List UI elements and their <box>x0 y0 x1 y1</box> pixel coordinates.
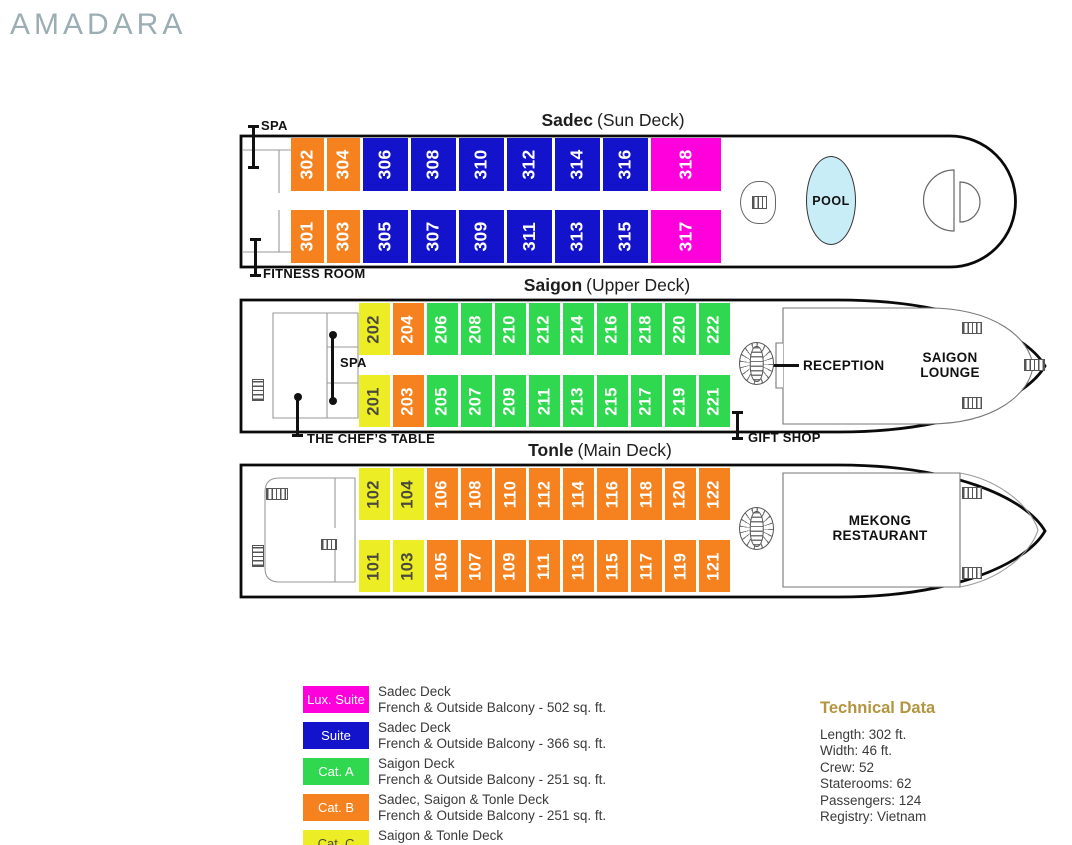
stateroom-111: 111 <box>529 540 560 592</box>
stateroom-302: 302 <box>291 138 324 191</box>
stateroom-108: 108 <box>461 468 492 520</box>
stateroom-number: 301 <box>297 221 318 251</box>
stateroom-305: 305 <box>363 210 408 263</box>
stateroom-number: 202 <box>365 315 384 343</box>
stateroom-number: 114 <box>569 480 588 508</box>
stateroom-212: 212 <box>529 303 560 355</box>
pool-label: POOL <box>812 194 849 208</box>
stateroom-220: 220 <box>665 303 696 355</box>
legend-text: Sadec Deck French & Outside Balcony - 50… <box>378 684 606 715</box>
fitness-room-label: FITNESS ROOM <box>263 266 366 281</box>
reception-label: RECEPTION <box>803 358 884 373</box>
deck-name: Tonle <box>528 440 573 460</box>
stateroom-109: 109 <box>495 540 526 592</box>
stateroom-number: 305 <box>375 221 396 251</box>
spa-leader-line-upper <box>331 334 334 402</box>
stateroom-114: 114 <box>563 468 594 520</box>
stateroom-number: 204 <box>399 315 418 343</box>
stateroom-104: 104 <box>393 468 424 520</box>
stateroom-number: 313 <box>567 221 588 251</box>
stateroom-number: 215 <box>603 387 622 415</box>
stateroom-number: 208 <box>467 315 486 343</box>
spa-label-sun-deck: SPA <box>261 118 288 133</box>
stateroom-203: 203 <box>393 375 424 427</box>
fitness-room-leader-line <box>254 239 257 276</box>
stateroom-number: 316 <box>615 149 636 179</box>
stairs-icon <box>252 379 264 401</box>
deck-subtitle: (Sun Deck) <box>597 110 685 130</box>
legend-row: Cat. B Sadec, Saigon & Tonle Deck French… <box>303 792 606 823</box>
deck-name: Sadec <box>541 110 593 130</box>
stateroom-number: 219 <box>671 387 690 415</box>
chefs-table-leader-line <box>296 396 299 436</box>
stairs-icon <box>252 545 264 567</box>
stateroom-221: 221 <box>699 375 730 427</box>
legend-text: Saigon Deck French & Outside Balcony - 2… <box>378 756 606 787</box>
tech-length: Length: 302 ft. <box>820 727 935 743</box>
stateroom-119: 119 <box>665 540 696 592</box>
stateroom-number: 113 <box>569 552 588 580</box>
stateroom-number: 115 <box>603 552 622 580</box>
tonle-rooms-port: 102104106108110112114116118120122 <box>359 468 730 520</box>
stateroom-number: 108 <box>467 480 486 508</box>
stateroom-number: 303 <box>333 221 354 251</box>
stateroom-310: 310 <box>459 138 504 191</box>
stateroom-number: 220 <box>671 315 690 343</box>
stateroom-121: 121 <box>699 540 730 592</box>
stateroom-110: 110 <box>495 468 526 520</box>
stateroom-106: 106 <box>427 468 458 520</box>
stateroom-number: 203 <box>399 387 418 415</box>
category-legend: Lux. Suite Sadec Deck French & Outside B… <box>303 684 606 845</box>
stateroom-number: 210 <box>501 315 520 343</box>
stateroom-number: 214 <box>569 315 588 343</box>
stateroom-number: 315 <box>615 221 636 251</box>
stateroom-number: 216 <box>603 315 622 343</box>
stateroom-313: 313 <box>555 210 600 263</box>
stateroom-101: 101 <box>359 540 390 592</box>
stateroom-211: 211 <box>529 375 560 427</box>
stateroom-number: 119 <box>671 552 690 580</box>
tonle-rooms-starboard: 101103105107109111113115117119121 <box>359 540 730 592</box>
stateroom-112: 112 <box>529 468 560 520</box>
stateroom-number: 109 <box>501 552 520 580</box>
legend-deck: Saigon & Tonle Deck <box>378 828 606 844</box>
stateroom-number: 222 <box>705 315 724 343</box>
stateroom-107: 107 <box>461 540 492 592</box>
stateroom-215: 215 <box>597 375 628 427</box>
stateroom-217: 217 <box>631 375 662 427</box>
legend-row: Lux. Suite Sadec Deck French & Outside B… <box>303 684 606 715</box>
stateroom-number: 314 <box>567 149 588 179</box>
stateroom-306: 306 <box>363 138 408 191</box>
stateroom-210: 210 <box>495 303 526 355</box>
legend-deck: Sadec, Saigon & Tonle Deck <box>378 792 606 808</box>
stateroom-202: 202 <box>359 303 390 355</box>
stateroom-307: 307 <box>411 210 456 263</box>
stateroom-number: 104 <box>399 480 418 508</box>
stateroom-122: 122 <box>699 468 730 520</box>
stateroom-number: 205 <box>433 387 452 415</box>
stateroom-number: 101 <box>365 552 384 580</box>
stateroom-208: 208 <box>461 303 492 355</box>
stateroom-308: 308 <box>411 138 456 191</box>
legend-row: Cat. C Saigon & Tonle Deck French & Outs… <box>303 828 606 845</box>
stateroom-number: 111 <box>535 553 554 580</box>
stateroom-303: 303 <box>327 210 360 263</box>
saigon-rooms-port: 202204206208210212214216218220222 <box>359 303 730 355</box>
stateroom-315: 315 <box>603 210 648 263</box>
stateroom-number: 307 <box>423 221 444 251</box>
stateroom-102: 102 <box>359 468 390 520</box>
deck-plan-page: AMADARA Sadec(Sun Deck) Saigon(Upper Dec… <box>0 0 1072 845</box>
saigon-rooms-starboard: 201203205207209211213215217219221 <box>359 375 730 427</box>
technical-data-panel: Technical Data Length: 302 ft. Width: 46… <box>820 699 935 825</box>
sadec-rooms-starboard: 301303305307309311313315317 <box>291 210 721 263</box>
stateroom-number: 105 <box>433 552 452 580</box>
stateroom-number: 302 <box>297 149 318 179</box>
gift-shop-label: GIFT SHOP <box>748 430 821 445</box>
legend-detail: French & Outside Balcony - 502 sq. ft. <box>378 700 606 716</box>
stateroom-number: 310 <box>471 149 492 179</box>
stateroom-number: 122 <box>705 480 724 508</box>
lounge-line1: SAIGON <box>898 350 1002 365</box>
deck-title-tonle: Tonle(Main Deck) <box>427 440 773 461</box>
chefs-table-label: THE CHEF’S TABLE <box>307 431 435 446</box>
lounge-line2: LOUNGE <box>898 365 1002 380</box>
stairs-icon <box>962 567 982 579</box>
stateroom-222: 222 <box>699 303 730 355</box>
stateroom-number: 121 <box>705 552 724 580</box>
stateroom-314: 314 <box>555 138 600 191</box>
stateroom-number: 309 <box>471 221 492 251</box>
stairs-icon <box>962 397 982 409</box>
stateroom-301: 301 <box>291 210 324 263</box>
stateroom-number: 212 <box>535 315 554 343</box>
legend-deck: Sadec Deck <box>378 720 606 736</box>
legend-detail: French & Outside Balcony - 366 sq. ft. <box>378 736 606 752</box>
stateroom-312: 312 <box>507 138 552 191</box>
stateroom-number: 211 <box>535 387 554 415</box>
spa-leader-line <box>252 126 255 168</box>
stateroom-304: 304 <box>327 138 360 191</box>
stateroom-201: 201 <box>359 375 390 427</box>
stateroom-113: 113 <box>563 540 594 592</box>
stateroom-103: 103 <box>393 540 424 592</box>
legend-swatch-lux-suite: Lux. Suite <box>303 686 369 713</box>
stateroom-number: 304 <box>333 149 354 179</box>
stateroom-213: 213 <box>563 375 594 427</box>
stateroom-number: 217 <box>637 387 656 415</box>
stateroom-219: 219 <box>665 375 696 427</box>
stateroom-number: 213 <box>569 387 588 415</box>
technical-data-title: Technical Data <box>820 699 935 718</box>
stateroom-number: 207 <box>467 387 486 415</box>
stateroom-number: 318 <box>675 149 696 179</box>
stateroom-218: 218 <box>631 303 662 355</box>
stateroom-number: 110 <box>501 480 520 508</box>
tech-passengers: Passengers: 124 <box>820 793 935 809</box>
spiral-staircase-icon <box>739 507 774 550</box>
stateroom-206: 206 <box>427 303 458 355</box>
spa-label-upper-deck: SPA <box>340 355 367 370</box>
stateroom-number: 312 <box>519 149 540 179</box>
stateroom-309: 309 <box>459 210 504 263</box>
tech-width: Width: 46 ft. <box>820 743 935 759</box>
stateroom-205: 205 <box>427 375 458 427</box>
tech-crew: Crew: 52 <box>820 760 935 776</box>
stateroom-117: 117 <box>631 540 662 592</box>
stairs-icon <box>266 488 288 500</box>
legend-swatch-cat-b: Cat. B <box>303 794 369 821</box>
deck-title-saigon: Saigon(Upper Deck) <box>434 275 780 296</box>
legend-row: Suite Sadec Deck French & Outside Balcon… <box>303 720 606 751</box>
stateroom-number: 117 <box>637 552 656 580</box>
stateroom-120: 120 <box>665 468 696 520</box>
legend-text: Saigon & Tonle Deck French & Outside Bal… <box>378 828 606 845</box>
stateroom-number: 308 <box>423 149 444 179</box>
stateroom-115: 115 <box>597 540 628 592</box>
stairs-icon <box>962 487 982 499</box>
stateroom-number: 218 <box>637 315 656 343</box>
stateroom-number: 107 <box>467 552 486 580</box>
stateroom-317: 317 <box>651 210 721 263</box>
stateroom-number: 311 <box>519 222 540 251</box>
stairs-icon <box>321 539 337 550</box>
stairs-icon <box>962 322 982 334</box>
saigon-lounge-label: SAIGON LOUNGE <box>898 350 1002 380</box>
stateroom-number: 209 <box>501 387 520 415</box>
legend-text: Sadec Deck French & Outside Balcony - 36… <box>378 720 606 751</box>
sadec-rooms-port: 302304306308310312314316318 <box>291 138 721 191</box>
gift-shop-leader-line <box>736 412 739 439</box>
stateroom-209: 209 <box>495 375 526 427</box>
stairs-icon <box>752 196 767 209</box>
stateroom-118: 118 <box>631 468 662 520</box>
mekong-restaurant-label: MEKONG RESTAURANT <box>818 513 942 543</box>
stateroom-number: 106 <box>433 480 452 508</box>
stateroom-105: 105 <box>427 540 458 592</box>
legend-text: Sadec, Saigon & Tonle Deck French & Outs… <box>378 792 606 823</box>
stateroom-116: 116 <box>597 468 628 520</box>
stateroom-number: 206 <box>433 315 452 343</box>
deck-name: Saigon <box>524 275 582 295</box>
stateroom-number: 201 <box>365 387 384 415</box>
tech-staterooms: Staterooms: 62 <box>820 776 935 792</box>
stateroom-316: 316 <box>603 138 648 191</box>
tech-registry: Registry: Vietnam <box>820 809 935 825</box>
pool: POOL <box>806 156 856 245</box>
amadara-logo: AMADARA <box>10 8 186 42</box>
legend-swatch-cat-a: Cat. A <box>303 758 369 785</box>
stairs-icon <box>1024 359 1045 371</box>
stateroom-number: 221 <box>705 387 724 415</box>
stateroom-number: 112 <box>535 480 554 508</box>
legend-detail: French & Outside Balcony - 251 sq. ft. <box>378 772 606 788</box>
spiral-staircase-icon <box>739 342 774 385</box>
stateroom-number: 118 <box>637 480 656 508</box>
legend-deck: Saigon Deck <box>378 756 606 772</box>
stateroom-number: 306 <box>375 149 396 179</box>
stateroom-number: 120 <box>671 480 690 508</box>
stateroom-216: 216 <box>597 303 628 355</box>
stateroom-number: 116 <box>603 480 622 508</box>
legend-row: Cat. A Saigon Deck French & Outside Balc… <box>303 756 606 787</box>
deck-subtitle: (Upper Deck) <box>586 275 690 295</box>
restaurant-line2: RESTAURANT <box>818 528 942 543</box>
stateroom-318: 318 <box>651 138 721 191</box>
stateroom-204: 204 <box>393 303 424 355</box>
legend-detail: French & Outside Balcony - 251 sq. ft. <box>378 808 606 824</box>
legend-swatch-suite: Suite <box>303 722 369 749</box>
stateroom-number: 103 <box>399 552 418 580</box>
stateroom-311: 311 <box>507 210 552 263</box>
stateroom-number: 102 <box>365 480 384 508</box>
deck-subtitle: (Main Deck) <box>578 440 672 460</box>
stateroom-number: 317 <box>675 221 696 251</box>
restaurant-line1: MEKONG <box>818 513 942 528</box>
legend-swatch-cat-c: Cat. C <box>303 830 369 845</box>
stateroom-207: 207 <box>461 375 492 427</box>
stateroom-214: 214 <box>563 303 594 355</box>
deck-title-sadec: Sadec(Sun Deck) <box>440 110 786 131</box>
legend-deck: Sadec Deck <box>378 684 606 700</box>
